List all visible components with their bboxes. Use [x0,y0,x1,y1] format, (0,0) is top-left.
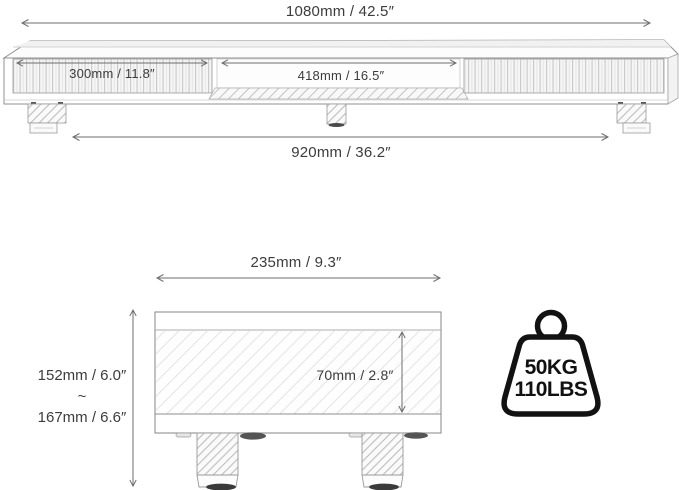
dim-label-overall-height: 152mm / 6.0″ ~ 167mm / 6.6″ [16,365,148,428]
side-view-middle-panel [156,331,440,414]
front-left-leg [28,102,66,133]
right-fluted-door [464,59,664,93]
tv-stand-side-view [155,312,441,490]
dim-label-open-shelf: 418mm / 16.5″ [298,68,385,83]
side-right-leg [362,433,403,490]
height-max-label: 167mm / 6.6″ [16,407,148,428]
dim-label-left-door: 300mm / 11.8″ [69,66,155,81]
open-compartment-shelf [209,88,468,99]
dim-label-leg-span: 920mm / 36.2″ [291,144,391,161]
height-min-label: 152mm / 6.0″ [16,365,148,386]
weight-lbs-label: 110LBS [515,378,588,402]
dim-arrow-depth [157,275,440,282]
tv-stand-right-side-face [668,54,678,104]
front-right-leg [617,102,650,133]
dim-arrow-total-width [22,20,650,27]
product-dimension-diagram: 1080mm / 42.5″ 300mm / 11.8″ 418mm / 16.… [0,0,679,490]
side-left-leg [197,433,238,490]
dim-label-total-width: 1080mm / 42.5″ [286,3,394,20]
tv-stand-top-surface [13,40,671,47]
tv-stand-front-view [4,40,678,133]
front-middle-leg [327,104,346,127]
dim-label-inner-height: 70mm / 2.8″ [316,367,393,383]
dim-arrow-leg-span [73,134,608,141]
height-range-separator: ~ [16,386,148,407]
weight-kg-label: 50KG [525,356,578,380]
dim-label-depth: 235mm / 9.3″ [250,254,341,271]
